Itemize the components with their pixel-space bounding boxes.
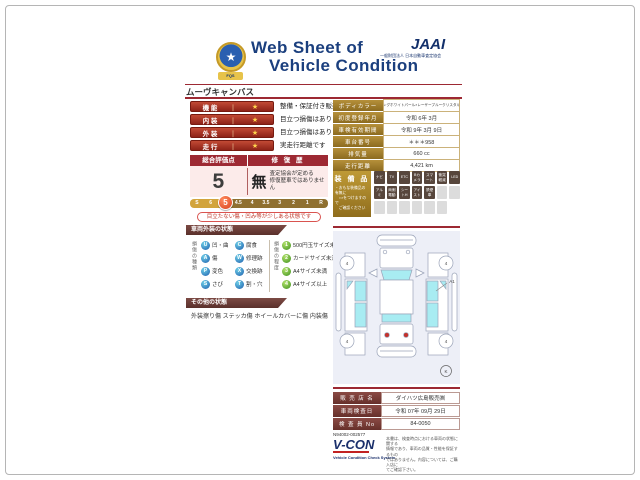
rating-row-interior: 内 装 ｜ ★ 目立つ損傷はありません: [190, 114, 328, 125]
jaai-logo: JAAI: [411, 36, 445, 53]
equipment-badge: スマート: [424, 171, 435, 184]
fqs-emblem-icon: ★ FQS: [214, 42, 246, 80]
rating-row-function: 機 能 ｜ ★ 整備・保証付き販売です: [190, 101, 328, 112]
repair-desc-line2: 修復歴車ではありません: [270, 178, 325, 191]
evaluation-header: 総合評価点 修 復 歴: [190, 155, 328, 166]
rating-label: 機 能: [191, 102, 229, 112]
damage-type-item: T 割・穴: [235, 279, 263, 289]
info-label: 車台番号: [333, 136, 383, 148]
roof-panel: [380, 280, 413, 314]
dealer-value: ダイハツ広島販売㈱: [381, 392, 460, 404]
info-label: 排気量: [333, 148, 383, 160]
left-front-window: [355, 281, 366, 301]
damage-type-text: さび: [212, 280, 223, 288]
dealer-label: 販 売 店 名: [333, 392, 381, 404]
equipment-badge-empty: [424, 201, 435, 214]
damage-type-text: 割・穴: [246, 280, 263, 288]
equipment-badge: アイスト: [412, 186, 423, 199]
car-butterfly-view: 4 4 4 4 A1 K: [333, 231, 460, 384]
damage-type-text: 凹・曲: [212, 241, 229, 249]
emblem-ribbon: FQS: [218, 72, 243, 80]
dealer-value: 84-0050: [381, 418, 460, 430]
equipment-note: ・おもな装備品の有無に ○×をつけますので ご確認ください: [335, 186, 369, 211]
damage-code-icon: C: [235, 241, 244, 250]
damage-degree-text: A4サイズ以上: [293, 280, 327, 288]
damage-type-text: 傷: [212, 254, 218, 262]
rating-row-exterior: 外 装 ｜ ★ 目立つ損傷はありません: [190, 127, 328, 138]
repair-history: 無 査定協会が定める 修復歴車ではありません: [248, 166, 328, 197]
repair-history-header: 修 復 歴: [248, 155, 328, 166]
emblem-star-icon: ★: [226, 51, 237, 63]
rating-description: 実走行距離です: [280, 140, 326, 151]
front-bumper: [377, 235, 416, 246]
score-scale-bar: S 6 5 4.5 4 3.5 3 2 1 R: [190, 199, 328, 208]
equipment-badge-grid: ナビ TV ETC Bカメラ スマート 衝突軽減 LED アルミ 両側電動 シー…: [374, 171, 460, 214]
header-divider: [185, 84, 462, 85]
equipment-title: 装 備 品: [333, 174, 371, 184]
equipment-badge-empty: [374, 201, 385, 214]
star-icon: ★: [237, 116, 273, 124]
damage-type-item: W 修理跡: [235, 253, 263, 263]
equipment-badge: 禁煙車: [424, 186, 435, 199]
dealer-value: 令和 07年 09月 29日: [381, 405, 460, 417]
scale-tick: 3.5: [259, 199, 273, 208]
info-label: 車検有効期間: [333, 124, 383, 136]
equipment-badge: 衝突軽減: [437, 171, 448, 184]
condition-note: 目立たない傷・凹み等が少しある状態です: [197, 212, 321, 222]
rear-glass: [382, 314, 411, 322]
damage-degree-text: A4サイズ未満: [293, 267, 327, 275]
vcon-logo: V-CON: [333, 437, 374, 452]
left-rear-window: [355, 303, 366, 327]
damage-code-icon: W: [235, 254, 244, 263]
damage-code-icon: S: [201, 280, 210, 289]
equipment-badge: 両側電動: [387, 186, 398, 199]
equipment-panel: 装 備 品 ・おもな装備品の有無に ○×をつけますので ご確認ください: [333, 171, 371, 217]
left-mirror: [369, 269, 377, 277]
repair-history-description: 査定協会が定める 修復歴車ではありません: [270, 171, 328, 192]
damage-code-icon: P: [201, 267, 210, 276]
scale-tick: R: [314, 199, 328, 208]
windshield-glass: [381, 270, 412, 280]
exterior-section-banner: 車両外装の状態: [186, 225, 287, 235]
damage-degree-item: 4 A4サイズ以上: [282, 279, 327, 289]
rating-divider: ｜: [229, 128, 237, 138]
right-rear-window: [427, 303, 438, 327]
rating-row-mileage: 走 行 ｜ ★ 実走行距離です: [190, 140, 328, 151]
equipment-badge-empty: [437, 186, 448, 199]
repair-history-value: 無: [252, 171, 267, 192]
scale-tick: 2: [287, 199, 301, 208]
damage-type-item: U 凹・曲: [201, 240, 229, 250]
rating-label: 内 装: [191, 115, 229, 125]
stamp-mark: K: [444, 369, 447, 374]
damage-type-item: S さび: [201, 279, 223, 289]
dealer-label: 検 査 員 No: [333, 418, 381, 430]
rating-label: 走 行: [191, 141, 229, 151]
rating-badge: 内 装 ｜ ★: [190, 114, 274, 125]
damage-degree-item: 3 A4サイズ未満: [282, 266, 327, 276]
disclaimer-line1: 本書は、検査時点における車両の状態に関する: [386, 436, 458, 446]
inspection-date-row: 車両検査日 令和 07年 09月 29日: [333, 405, 460, 417]
tail-light-icon: [385, 333, 390, 338]
equipment-badge-empty: [449, 186, 460, 199]
damage-code-icon: A: [201, 254, 210, 263]
equipment-badge-empty: [387, 201, 398, 214]
scale-tick: S: [190, 199, 204, 208]
damage-type-text: 腐食: [246, 241, 257, 249]
equipment-note-line3: ご確認ください: [335, 206, 365, 210]
repair-desc-line1: 査定協会が定める: [270, 171, 314, 177]
damage-type-text: 変色: [212, 267, 223, 275]
damage-degrees-label: 損傷の程度: [273, 241, 280, 291]
jaai-org-subtitle: 一般財団法人 日本自動車査定協会: [380, 53, 441, 59]
other-section-banner: その他の状態: [186, 298, 287, 308]
damage-code-icon: T: [235, 280, 244, 289]
equipment-badge: シートH: [399, 186, 410, 199]
right-mirror: [416, 269, 424, 277]
dealer-table: 販 売 店 名 ダイハツ広島販売㈱ 車両検査日 令和 07年 09月 29日 検…: [333, 392, 460, 431]
equipment-note-line2: ○×をつけますので: [335, 196, 366, 205]
damage-type-item: A 傷: [201, 253, 218, 263]
legend-divider: [269, 240, 270, 292]
damage-type-item: C 腐食: [235, 240, 257, 250]
info-label: 初度登録年月: [333, 112, 383, 124]
equipment-note-line1: ・おもな装備品の有無に: [335, 186, 365, 195]
damage-types-label: 損傷の種類: [191, 241, 198, 291]
car-damage-diagram: 4 4 4 4 A1 K: [333, 231, 460, 384]
sheet-title-line2: Vehicle Condition: [269, 56, 418, 76]
dealer-name-row: 販 売 店 名 ダイハツ広島販売㈱: [333, 392, 460, 404]
dealer-label: 車両検査日: [333, 405, 381, 417]
scale-tick: 1: [300, 199, 314, 208]
damage-type-item: P 変色: [201, 266, 223, 276]
star-icon: ★: [237, 129, 273, 137]
scale-tick: 4: [245, 199, 259, 208]
degree-code-icon: 1: [282, 241, 291, 250]
overall-score-value: 5: [190, 166, 247, 197]
vehicle-info-table: ボディカラー シャイニングホワイトパール×レーザーブルークリスタルシャイン 初度…: [333, 100, 460, 172]
tail-light-icon: [404, 333, 409, 338]
rating-divider: ｜: [229, 115, 237, 125]
evaluation-body: 5 無 査定協会が定める 修復歴車ではありません: [190, 166, 328, 197]
scale-marker: 5: [218, 195, 233, 210]
disclaimer-line2: 情報であり、車両の品質・性能を保証するもの: [386, 446, 458, 456]
vcon-logo-underline: [333, 451, 369, 453]
damage-degree-text: カードサイズ未満: [293, 254, 337, 262]
disclaimer-line4: てご確認下さい。: [386, 467, 418, 472]
disclaimer-line3: ではありません。内容については、ご購入店に: [386, 457, 458, 467]
damage-degree-item: 2 カードサイズ未満: [282, 253, 337, 263]
equipment-badge: アルミ: [374, 186, 385, 199]
equipment-badge: LED: [449, 171, 460, 184]
equipment-badge-empty: [437, 201, 448, 214]
star-icon: ★: [237, 142, 273, 150]
rating-badge: 外 装 ｜ ★: [190, 127, 274, 138]
equipment-badge: Bカメラ: [412, 171, 423, 184]
dealer-top-divider: [333, 387, 460, 389]
damage-annotation: A1: [449, 279, 455, 284]
equipment-badge-empty: [399, 201, 410, 214]
equipment-badge: TV: [387, 171, 398, 184]
rating-divider: ｜: [229, 141, 237, 151]
scale-tick: 4.5: [231, 199, 245, 208]
equipment-badge: ETC: [399, 171, 410, 184]
rating-badge: 走 行 ｜ ★: [190, 140, 274, 151]
disclaimer-text: 本書は、検査時点における車両の状態に関する 情報であり、車両の品質・性能を保証す…: [386, 436, 461, 472]
info-label: ボディカラー: [333, 100, 383, 112]
inspector-number-row: 検 査 員 No 84-0050: [333, 418, 460, 430]
damage-code-icon: U: [201, 241, 210, 250]
damage-type-text: 修理跡: [246, 254, 263, 262]
overall-score-header: 総合評価点: [190, 155, 248, 166]
rating-divider: ｜: [229, 102, 237, 112]
scale-tick: 3: [273, 199, 287, 208]
rating-label: 外 装: [191, 128, 229, 138]
rating-badge: 機 能 ｜ ★: [190, 101, 274, 112]
left-sill: [336, 273, 341, 331]
rear-bumper: [377, 346, 416, 357]
damage-degree-item: 1 500円玉サイズ未満: [282, 240, 341, 250]
diagram-top-divider: [333, 226, 460, 228]
degree-code-icon: 4: [282, 280, 291, 289]
damage-type-text: 交換跡: [246, 267, 263, 275]
other-conditions-text: 外装擦り傷 ステッカ傷 ホイールカバーに傷 内装傷: [191, 311, 328, 320]
damage-code-icon: X: [235, 267, 244, 276]
equipment-badge-empty: [412, 201, 423, 214]
damage-type-item: X 交換跡: [235, 266, 263, 276]
scale-tick: 6: [204, 199, 218, 208]
degree-code-icon: 2: [282, 254, 291, 263]
sheet-title-line1: Web Sheet of: [251, 38, 363, 58]
star-icon: ★: [237, 103, 273, 111]
equipment-badge: ナビ: [374, 171, 385, 184]
degree-code-icon: 3: [282, 267, 291, 276]
